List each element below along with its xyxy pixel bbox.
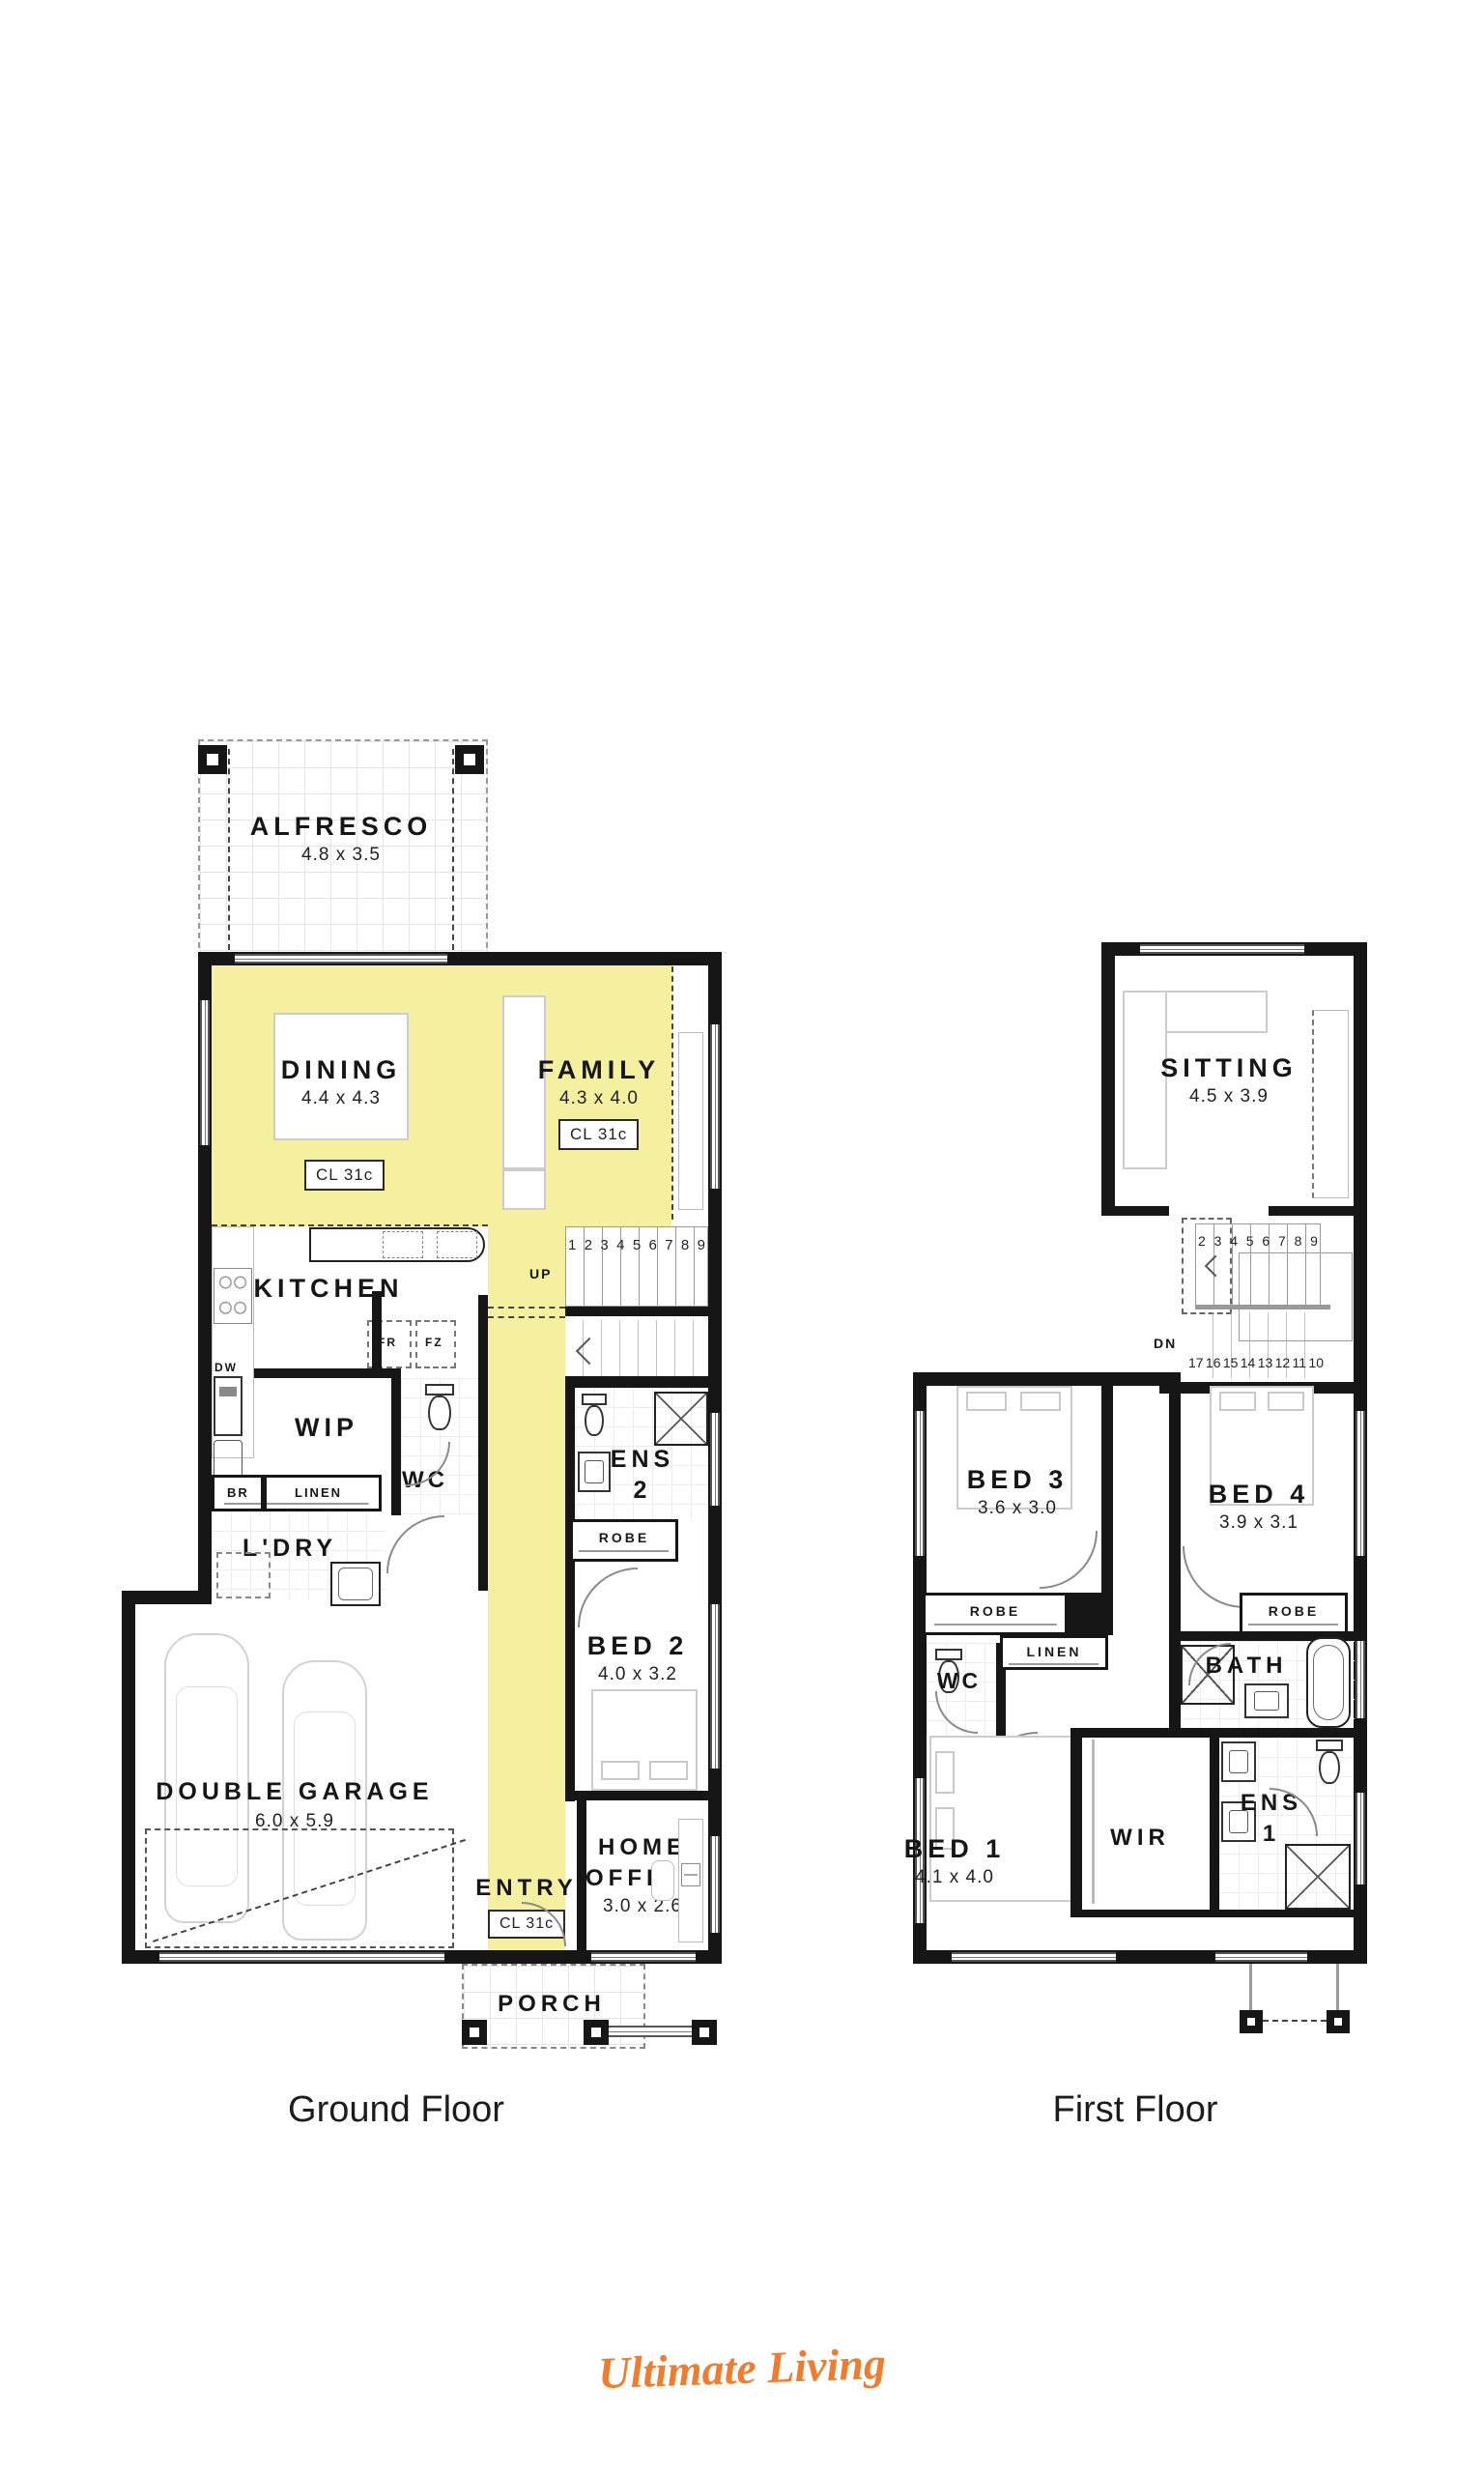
toilet-tank <box>935 1649 962 1660</box>
wc-label: WC <box>916 1668 1003 1694</box>
ldry-door-arc <box>386 1515 444 1573</box>
balcony-post <box>1240 2010 1263 2033</box>
bed2-pillow <box>601 1761 640 1780</box>
ground-floor-plan: ALFRESCO 4.8 x 3.5 DINING 4.4 x 4.3 CL 3… <box>0 0 742 2474</box>
office-chair <box>651 1860 674 1901</box>
bed2-label: BED 2 <box>541 1631 734 1661</box>
wall <box>1070 1910 1367 1917</box>
ens1-shower <box>1285 1844 1351 1910</box>
bed2-door-arc <box>578 1568 638 1627</box>
office-computer <box>681 1863 700 1886</box>
bed1-pillow <box>935 1751 955 1794</box>
corridor-dash <box>488 1307 565 1309</box>
linen-cupboard: LINEN <box>1000 1635 1108 1670</box>
alfresco-dims: 4.8 x 3.5 <box>244 845 438 866</box>
alfresco-inner-dash-right <box>452 749 454 950</box>
wall <box>913 1372 1174 1386</box>
linen-label: LINEN <box>295 1485 342 1500</box>
alfresco-post-left <box>198 745 227 774</box>
wall <box>1101 942 1115 1213</box>
toilet-tank <box>582 1394 607 1405</box>
family-nook-dash <box>671 966 673 1220</box>
garage-door <box>159 1952 444 1962</box>
alfresco-sliding-door <box>235 954 447 964</box>
stairs-numbers-top: 23456789 <box>1198 1233 1318 1249</box>
balcony-dash <box>1263 2020 1327 2022</box>
kitchen-island-hatch2 <box>437 1231 477 1258</box>
dining-ceiling-tag: CL 31c <box>304 1160 385 1191</box>
ground-floor-caption: Ground Floor <box>203 2089 589 2131</box>
wall <box>1068 1593 1113 1635</box>
ens2-window <box>710 1413 720 1506</box>
dw-label: DW <box>214 1361 238 1374</box>
wir-label: WIR <box>1082 1825 1198 1852</box>
balcony-post <box>1327 2010 1350 2033</box>
porch-post <box>692 2020 717 2045</box>
porch-post <box>584 2020 609 2045</box>
ens2-shower <box>654 1392 708 1446</box>
linen-label: LINEN <box>1003 1644 1105 1659</box>
bed2-dims: 4.0 x 3.2 <box>541 1664 734 1685</box>
sitting-cabinet <box>1312 1010 1349 1198</box>
bed3-pillow <box>1020 1392 1061 1411</box>
balcony-line <box>1249 1964 1252 2010</box>
wall <box>565 1376 722 1388</box>
wip-label: WIP <box>254 1413 399 1443</box>
stairs-dn-label: DN <box>1154 1336 1177 1351</box>
dining-dims: 4.4 x 4.3 <box>244 1088 438 1109</box>
ens2-label-line2: 2 <box>585 1477 700 1505</box>
bed4-robe: ROBE <box>1240 1593 1348 1635</box>
first-floor-plan: SITTING 4.5 x 3.9 23456789 DN 1716151413… <box>742 0 1484 2474</box>
sitting-dims: 4.5 x 3.9 <box>1132 1086 1326 1108</box>
dining-window <box>200 1000 210 1145</box>
wall <box>565 1791 722 1800</box>
stair-landing-rail <box>1239 1252 1353 1341</box>
alfresco-inner-dash-left <box>228 749 230 950</box>
fz-label: FZ <box>425 1336 443 1349</box>
wall <box>478 1295 488 1591</box>
wall <box>1269 1206 1367 1216</box>
bed4-label: BED 4 <box>1162 1480 1356 1510</box>
toilet-bowl <box>585 1405 605 1436</box>
toilet-tank <box>425 1384 454 1395</box>
wir-shelf <box>1092 1740 1095 1904</box>
bed1-dims: 4.1 x 4.0 <box>858 1867 1051 1888</box>
bed3-pillow <box>966 1392 1007 1411</box>
family-sofa-corner <box>502 1169 546 1210</box>
bed1-label: BED 1 <box>858 1834 1051 1864</box>
family-window <box>710 1024 720 1189</box>
garage-dash-zone <box>145 1828 454 1948</box>
dining-label: DINING <box>244 1055 438 1085</box>
ens1-vanity <box>1221 1741 1256 1782</box>
kitchen-label: KITCHEN <box>232 1274 425 1304</box>
wall <box>261 1475 267 1511</box>
ens2-toilet <box>582 1394 607 1436</box>
bathtub <box>1306 1637 1351 1728</box>
floorplan-page: ALFRESCO 4.8 x 3.5 DINING 4.4 x 4.3 CL 3… <box>0 0 1484 2474</box>
ldry-bench-dash <box>216 1552 271 1598</box>
family-cabinet <box>678 1032 703 1210</box>
wall <box>565 1376 575 1801</box>
bed1-window-bottom <box>952 1952 1116 1962</box>
corridor-highlight <box>488 1226 565 1950</box>
ens1-window-right <box>1356 1793 1365 1884</box>
porch-label: PORCH <box>462 1991 642 2018</box>
kitchen-island-hatch <box>383 1231 423 1258</box>
bed4-dims: 3.9 x 3.1 <box>1162 1512 1356 1534</box>
ldry-trough-basin <box>338 1568 373 1600</box>
stairs-up-label: UP <box>529 1266 552 1281</box>
bed3-dims: 3.6 x 3.0 <box>921 1498 1114 1519</box>
bed2-robe-label: ROBE <box>573 1530 675 1545</box>
stairs-numbers: 123456789 <box>568 1237 705 1253</box>
bed4-door-arc <box>1183 1546 1244 1608</box>
corridor-dash2 <box>488 1316 565 1318</box>
toilet-tank <box>1316 1740 1343 1751</box>
bed3-robe: ROBE <box>923 1593 1068 1635</box>
bath-window <box>1356 1641 1365 1718</box>
bed2-robe: ROBE <box>570 1519 678 1562</box>
office-window-bottom <box>591 1952 696 1962</box>
porch-balustrade <box>609 2026 692 2037</box>
wall <box>1070 1728 1082 1917</box>
bed2-window <box>710 1604 720 1769</box>
alfresco-label: ALFRESCO <box>244 812 438 842</box>
ens1-window-bottom <box>1215 1952 1307 1962</box>
family-dims: 4.3 x 4.0 <box>502 1088 696 1109</box>
stairs-numbers-bottom: 1716151413121110 <box>1188 1355 1324 1370</box>
wall <box>565 1307 722 1316</box>
bed4-robe-label: ROBE <box>1242 1603 1345 1619</box>
bed3-door-arc <box>1040 1531 1098 1589</box>
ens1-toilet <box>1316 1740 1343 1784</box>
office-window-right <box>710 1836 720 1933</box>
first-floor-caption: First Floor <box>942 2089 1328 2131</box>
garage-label: DOUBLE GARAGE <box>130 1778 459 1806</box>
bed3-label: BED 3 <box>921 1465 1114 1495</box>
dishwasher <box>214 1376 243 1436</box>
sitting-window <box>1140 944 1304 954</box>
wall <box>254 1368 391 1378</box>
bed3-robe-label: ROBE <box>926 1603 1065 1619</box>
toilet-bowl <box>1319 1751 1340 1784</box>
sitting-label: SITTING <box>1132 1053 1326 1083</box>
porch-post <box>462 2020 487 2045</box>
alfresco-post-right <box>455 745 484 774</box>
bed4-pillow <box>1219 1392 1256 1411</box>
toilet-bowl <box>428 1395 451 1430</box>
wc-toilet <box>425 1384 454 1430</box>
ens2-label-line1: ENS <box>585 1446 700 1474</box>
wall <box>1101 1206 1169 1216</box>
bed4-window <box>1356 1411 1365 1556</box>
wall <box>372 1291 382 1378</box>
bed2-pillow <box>649 1761 688 1780</box>
br-label: BR <box>227 1485 249 1500</box>
wall <box>122 1591 135 1964</box>
bath-vanity <box>1244 1683 1289 1718</box>
balcony-line <box>1336 1964 1339 2010</box>
bed4-pillow <box>1268 1392 1304 1411</box>
family-ceiling-tag: CL 31c <box>558 1119 639 1150</box>
family-label: FAMILY <box>502 1055 696 1085</box>
